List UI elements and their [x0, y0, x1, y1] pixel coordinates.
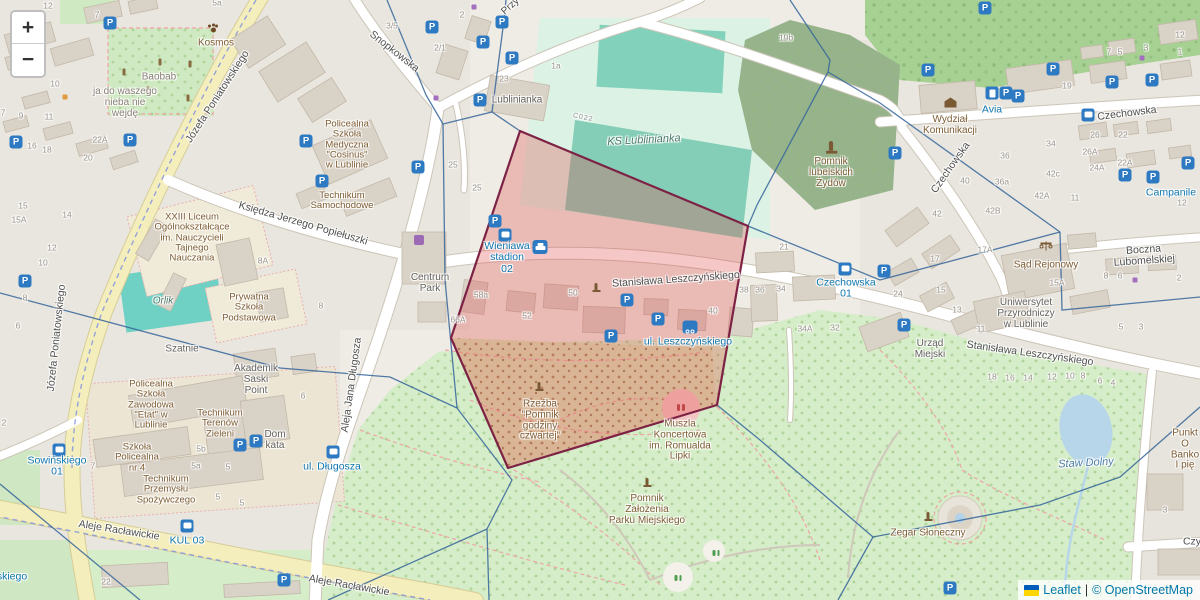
attribution-bar: Leaflet | © OpenStreetMap [1018, 580, 1200, 600]
zoom-in-button[interactable]: + [12, 12, 44, 44]
leaflet-map[interactable]: PPPPPPPPPPPPPPPPPPPPPPPPPPPPPPPPP Józefa… [0, 0, 1200, 600]
leaflet-link[interactable]: Leaflet [1043, 583, 1081, 597]
zoom-control: + − [10, 10, 46, 78]
osm-link[interactable]: © OpenStreetMap [1092, 583, 1193, 597]
attribution-separator: | [1085, 583, 1088, 597]
ukraine-flag-icon [1024, 585, 1039, 596]
map-tiles [0, 0, 1200, 600]
zoom-out-button[interactable]: − [12, 44, 44, 76]
